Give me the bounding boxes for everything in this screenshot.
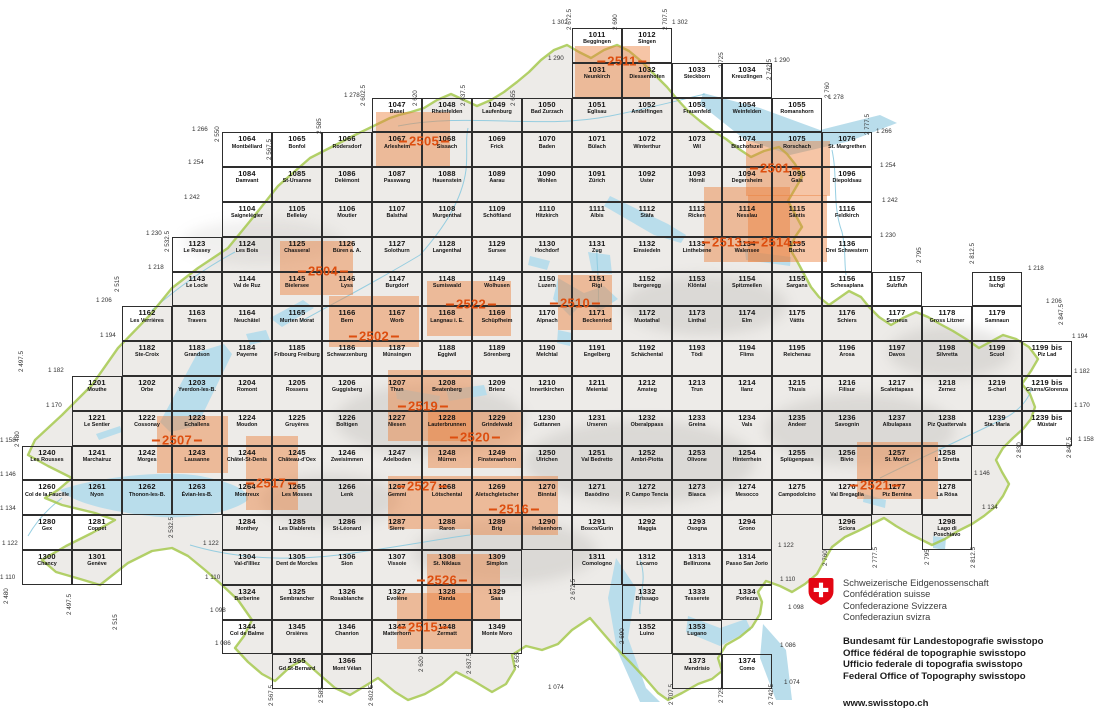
confederation-line-rm: Confederaziun svizra [843, 612, 1043, 623]
grid-coordinate-label: 1 170 [1074, 402, 1090, 409]
grid-coordinate-label: 2 480 [3, 588, 10, 604]
grid-coordinate-label: 1 134 [0, 505, 16, 512]
grid-coordinate-label: 1 086 [215, 640, 231, 647]
grid-coordinate-label: 1 194 [1072, 333, 1088, 340]
grid-coordinate-label: 2 550 [214, 126, 221, 142]
office-name-fr: Office fédéral de topographie swisstopo [843, 648, 1043, 660]
grid-coordinate-label: 1 266 [876, 128, 892, 135]
grid-coordinate-label: 2 515 [112, 614, 119, 630]
grid-coordinate-label: 2 497.5 [18, 351, 25, 372]
grid-coordinate-label: 1 122 [203, 540, 219, 547]
swiss-flag-icon [808, 578, 834, 605]
grid-coordinate-label: 1 206 [96, 297, 112, 304]
grid-coordinate-label: 1 254 [188, 159, 204, 166]
grid-coordinate-label: 1 074 [784, 679, 800, 686]
swisstopo-logo-block: Schweizerische Eidgenossenschaft Confédé… [808, 578, 1088, 709]
grid-coordinate-label: 1 182 [1074, 368, 1090, 375]
grid-coordinate-label: 2 812.5 [970, 547, 977, 568]
grid-coordinate-label: 2 795 [924, 549, 931, 565]
grid-coordinate-label: 2 707.5 [662, 9, 669, 30]
grid-coordinate-label: 1 230 [880, 232, 896, 239]
grid-coordinate-label: 1 182 [48, 367, 64, 374]
grid-coordinate-label: 1 302 [672, 19, 688, 26]
grid-coordinate-label: 2 690 [612, 14, 619, 30]
grid-coordinate-label: 2 777.5 [872, 547, 879, 568]
grid-coordinate-label: 2 567.5 [268, 685, 275, 706]
grid-coordinate-label: 2 690 [619, 628, 626, 644]
grid-coordinate-label: 1 098 [210, 607, 226, 614]
grid-coordinate-label: 2 830 [1016, 442, 1023, 458]
grid-coordinate-label: 2 585 [316, 118, 323, 134]
grid-coordinate-label: 1 146 [974, 470, 990, 477]
grid-coordinate-label: 2 655 [514, 652, 521, 668]
office-name-it: Ufficio federale di topografia swisstopo [843, 659, 1043, 671]
grid-coordinate-label: 2 847.5 [1066, 437, 1073, 458]
office-name-en: Federal Office of Topography swisstopo [843, 671, 1043, 683]
grid-coordinate-label: 1 110 [0, 574, 15, 581]
grid-coordinate-label: 2 497.5 [66, 594, 73, 615]
grid-coordinate-label: 1 086 [780, 642, 796, 649]
grid-coordinate-label: 2 567.5 [266, 139, 273, 160]
grid-coordinate-label: 1 122 [2, 540, 18, 547]
grid-coordinate-label: 1 290 [774, 57, 790, 64]
grid-coordinate-label: 1 290 [548, 55, 564, 62]
grid-coordinate-label: 1 254 [880, 162, 896, 169]
grid-coordinate-label: 1 230 [146, 230, 162, 237]
grid-coordinate-label: 2 620 [418, 656, 425, 672]
grid-coordinate-label: 2 602.5 [360, 85, 367, 106]
grid-coordinate-label: 1 218 [1028, 265, 1044, 272]
grid-coordinate-label: 2 725 [718, 687, 725, 703]
grid-coordinate-label: 1 098 [788, 604, 804, 611]
grid-coordinate-label: 1 194 [100, 332, 116, 339]
confederation-line-it: Confederazione Svizzera [843, 601, 1043, 612]
office-name-de: Bundesamt für Landestopografie swisstopo [843, 636, 1043, 648]
grid-coordinate-label: 2 655 [510, 90, 517, 106]
grid-coordinate-label: 2 672.5 [566, 9, 573, 30]
grid-coordinate-label: 2 795 [916, 247, 923, 263]
grid-coordinate-label: 1 242 [184, 194, 200, 201]
grid-coordinate-label: 2 515 [114, 276, 121, 292]
grid-coordinate-label: 2 585 [318, 687, 325, 703]
grid-coordinate-label: 2 532.5 [168, 517, 175, 538]
grid-coordinate-label: 2 847.5 [1058, 304, 1065, 325]
grid-coordinate-label: 2 742.5 [768, 684, 775, 705]
grid-coordinate-label: 1 110 [205, 574, 220, 581]
grid-coordinate-label: 2 532.5 [164, 231, 171, 252]
grid-coordinate-label: 1 122 [778, 542, 794, 549]
grid-coordinate-label: 2 637.5 [460, 85, 467, 106]
grid-coordinate-label: 2 620 [412, 90, 419, 106]
grid-coordinate-label: 1 158 [1078, 436, 1094, 443]
grid-coordinate-label: 1 074 [548, 684, 564, 691]
grid-coordinate-label: 2 707.5 [668, 684, 675, 705]
grid-coordinate-label: 1 170 [46, 402, 62, 409]
grid-coordinate-label: 2 672.5 [570, 579, 577, 600]
grid-coordinate-label: 2 760 [822, 550, 829, 566]
grid-coordinate-label: 1 218 [148, 264, 164, 271]
grid-coordinate-label: 1 266 [192, 126, 208, 133]
grid-coordinate-label: 2 480 [14, 431, 21, 447]
confederation-line-fr: Confédération suisse [843, 589, 1043, 600]
grid-coordinate-label: 2 760 [824, 82, 831, 98]
swisstopo-url[interactable]: www.swisstopo.ch [843, 698, 1043, 709]
grid-coordinate-label: 2 725 [718, 52, 725, 68]
grid-coordinate-label: 1 110 [780, 576, 795, 583]
grid-coordinate-label: 2 742.5 [766, 59, 773, 80]
grid-coordinate-label: 2 602.5 [368, 685, 375, 706]
grid-coordinate-label: 1 278 [344, 92, 360, 99]
grid-coordinate-label: 1 134 [982, 504, 998, 511]
grid-coordinate-label: 2 777.5 [864, 114, 871, 135]
confederation-line-de: Schweizerische Eidgenossenschaft [843, 578, 1043, 589]
grid-coordinate-label: 2 812.5 [969, 243, 976, 264]
swisstopo-sheet-index-page: 1011Beggingen1012Singen1031Neunkirch1032… [0, 0, 1100, 718]
grid-coordinate-label: 1 146 [0, 471, 16, 478]
grid-coordinate-label: 1 242 [882, 197, 898, 204]
grid-coordinate-label: 2 637.5 [466, 653, 473, 674]
